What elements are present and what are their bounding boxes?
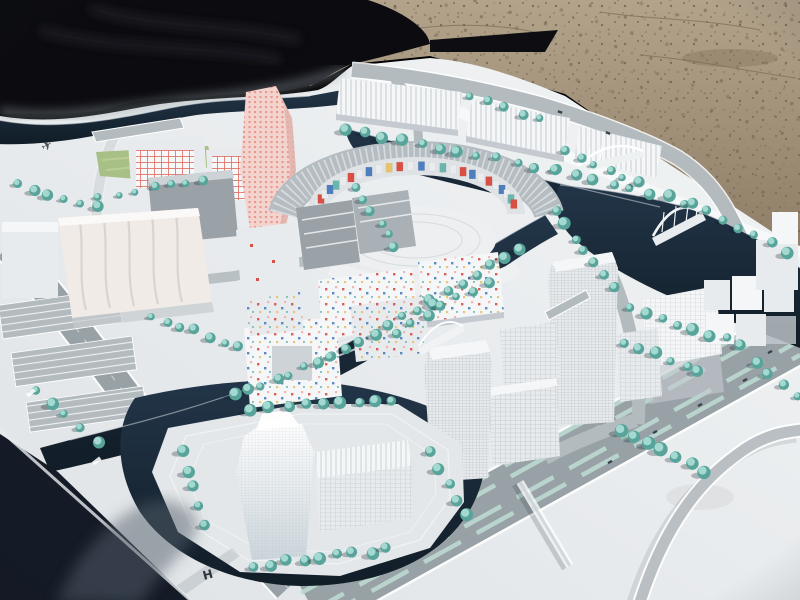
foreground [0,0,800,600]
photo-vignette [0,0,800,600]
model-photo-canvas: ✈ H [0,0,800,600]
photo-of-architectural-model: ✈ H [0,0,800,600]
